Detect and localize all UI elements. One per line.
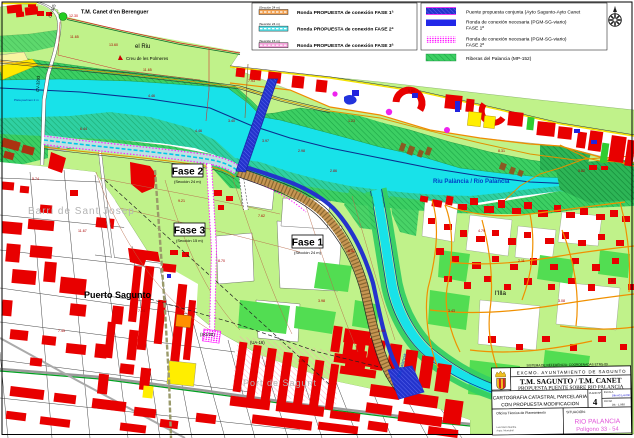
svg-text:el Riu: el Riu [135,44,150,50]
svg-text:Puente propuesta conjunta (Ayt: Puente propuesta conjunta (Ayto Sagunto-… [466,10,581,16]
svg-text:9.21: 9.21 [178,199,185,203]
svg-text:7.93: 7.93 [248,79,255,83]
svg-text:Ronda PROPUESTA de conexión F: Ronda PROPUESTA de conexión FASE 3ª [297,43,394,49]
svg-text:3.98: 3.98 [318,299,325,303]
svg-text:(Sección 15 m): (Sección 15 m) [176,238,204,243]
svg-text:Fase 3: Fase 3 [174,226,206,237]
svg-text:Ronda PROPUESTA de conexión F: Ronda PROPUESTA de conexión FASE 1ª [297,10,394,16]
svg-text:Ronda PROPUESTA de conexión F: Ronda PROPUESTA de conexión FASE 2ª [297,27,394,33]
svg-text:6.52: 6.52 [348,249,355,253]
svg-text:11.65: 11.65 [70,35,79,39]
svg-text:PLANO Nº: PLANO Nº [589,391,601,395]
svg-text:FASE 1ª: FASE 1ª [466,26,484,32]
svg-text:11.65: 11.65 [143,68,152,72]
svg-text:7.24: 7.24 [138,309,145,313]
svg-text:Pista pavimen 2 m: Pista pavimen 2 m [14,98,39,102]
svg-text:Arqto. Municipal: Arqto. Municipal [496,429,514,432]
svg-text:3.43: 3.43 [448,309,455,313]
svg-text:FASE 2ª: FASE 2ª [466,43,484,49]
svg-text:13.60: 13.60 [109,43,118,47]
svg-text:FECHA: FECHA [604,400,613,403]
svg-text:2.86: 2.86 [330,169,337,173]
svg-text:T.M. Canet d'en Berenguer: T.M. Canet d'en Berenguer [81,10,149,16]
svg-text:(Sección 24 m): (Sección 24 m) [174,179,202,184]
svg-text:4: 4 [593,397,598,407]
svg-text:Oficina Técnica de Planeamient: Oficina Técnica de Planeamiento [496,411,546,416]
svg-text:Fase 1: Fase 1 [292,238,324,249]
svg-text:1.06: 1.06 [298,359,305,363]
svg-text:1.23: 1.23 [348,119,355,123]
svg-text:8.90: 8.90 [378,329,385,333]
svg-text:Riberas del Palancia (MP-152): Riberas del Palancia (MP-152) [466,56,532,62]
svg-text:8.70: 8.70 [218,259,225,263]
svg-text:(Sección 24 m): (Sección 24 m) [259,6,280,10]
svg-text:CV-3203: CV-3203 [35,75,41,92]
svg-text:Riu Palància / Río Palancia: Riu Palància / Río Palancia [433,179,510,185]
svg-text:6.44: 6.44 [80,127,87,131]
svg-text:7.45: 7.45 [58,329,65,333]
svg-text:(UA-16): (UA-16) [250,340,265,345]
svg-text:4.79: 4.79 [478,229,485,233]
svg-text:RIO PALANCIA: RIO PALANCIA [574,418,620,426]
svg-text:(Sección 15 m): (Sección 15 m) [259,39,280,43]
svg-text:5.74: 5.74 [32,177,39,181]
svg-text:4.46: 4.46 [148,94,155,98]
svg-text:5.80: 5.80 [408,89,415,93]
svg-text:CON PROPUESTA MODIFICACION: CON PROPUESTA MODIFICACION [501,401,579,408]
svg-text:4.46: 4.46 [195,129,202,133]
svg-text:(SG/30): (SG/30) [200,332,215,337]
svg-text:DIN-A3 1/4.000: DIN-A3 1/4.000 [612,393,630,397]
svg-text:Creu de les Polmeres: Creu de les Polmeres [126,56,169,61]
svg-text:SITUACIÓN:: SITUACIÓN: [566,409,586,414]
svg-text:2.98: 2.98 [298,149,305,153]
svg-text:Port de Sagunt: Port de Sagunt [243,378,317,388]
svg-text:l'Illa: l'Illa [495,290,506,297]
svg-text:8.31: 8.31 [498,149,505,153]
svg-text:(Sección 24 m): (Sección 24 m) [259,22,280,26]
svg-text:11.67: 11.67 [78,229,87,233]
svg-text:Dic - 1.998: Dic - 1.998 [612,402,625,406]
svg-text:Polígono 33 - 54: Polígono 33 - 54 [576,426,619,433]
svg-text:Ronda de conexión necesaria (P: Ronda de conexión necesaria (PGM-SG-viar… [466,36,567,42]
svg-text:(Sección 24 m): (Sección 24 m) [294,250,322,255]
svg-text:3.40: 3.40 [228,119,235,123]
svg-text:Ronda de conexión necesaria (P: Ronda de conexión necesaria (PGM-SG-viar… [466,19,567,25]
svg-text:12.30: 12.30 [69,14,78,18]
svg-text:7.62: 7.62 [258,214,265,218]
svg-text:Puerto Sagunto: Puerto Sagunto [84,290,152,300]
svg-text:Fase 2: Fase 2 [172,167,204,178]
svg-text:3.08: 3.08 [558,299,565,303]
svg-text:5.82: 5.82 [578,169,585,173]
svg-text:Barri de Sant Josep: Barri de Sant Josep [28,206,135,217]
svg-text:1.80: 1.80 [608,279,615,283]
svg-text:2.11: 2.11 [518,259,525,263]
svg-text:3.97: 3.97 [262,139,269,143]
